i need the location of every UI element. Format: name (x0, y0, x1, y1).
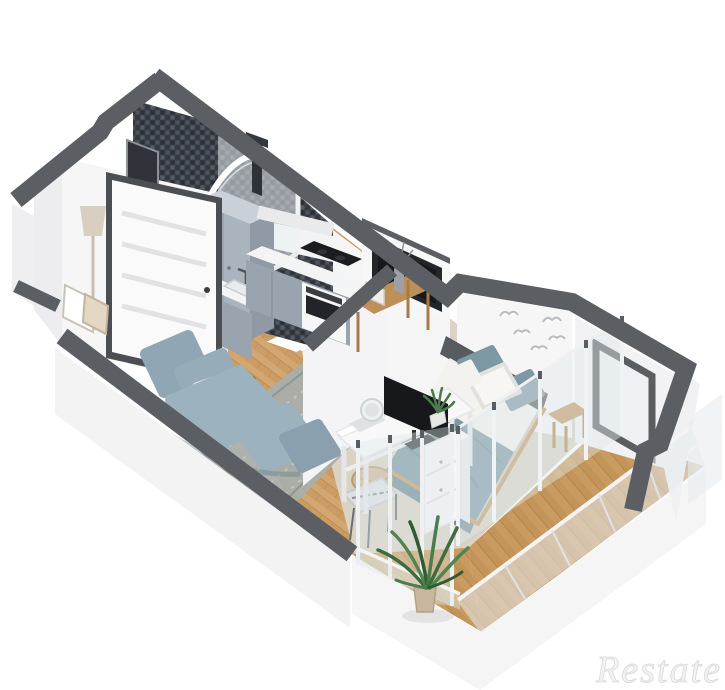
floor-lamp-shade (80, 206, 106, 236)
tall-cabinet-handle-2 (227, 266, 231, 270)
door-handle (204, 287, 210, 293)
watermark: Restate (595, 649, 722, 690)
floor-plan-image: Restate (0, 0, 725, 690)
plant-pot (414, 588, 436, 612)
burner (317, 250, 327, 255)
round-mirror-glass (365, 403, 379, 417)
floor-plan-svg: Restate (0, 0, 725, 690)
burner-2 (335, 256, 345, 261)
